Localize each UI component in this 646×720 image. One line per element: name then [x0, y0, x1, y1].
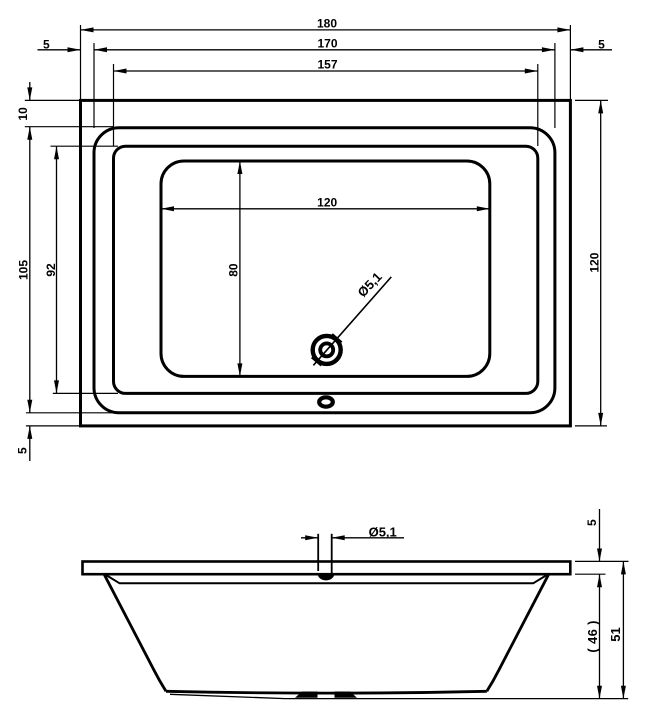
svg-text:( 46 ): ( 46 ): [585, 620, 600, 652]
svg-text:120: 120: [588, 252, 602, 272]
svg-text:180: 180: [317, 17, 337, 31]
svg-text:80: 80: [227, 263, 241, 277]
svg-text:10: 10: [16, 107, 30, 121]
svg-text:Ø5,1: Ø5,1: [369, 524, 397, 539]
svg-text:157: 157: [317, 58, 337, 72]
svg-text:170: 170: [317, 37, 337, 51]
svg-text:5: 5: [585, 519, 599, 526]
svg-text:5: 5: [43, 37, 50, 51]
svg-text:5: 5: [598, 37, 605, 51]
svg-text:5: 5: [15, 447, 29, 454]
svg-text:120: 120: [317, 195, 337, 209]
svg-text:92: 92: [44, 263, 58, 277]
svg-text:51: 51: [608, 627, 623, 641]
svg-text:105: 105: [16, 260, 30, 280]
